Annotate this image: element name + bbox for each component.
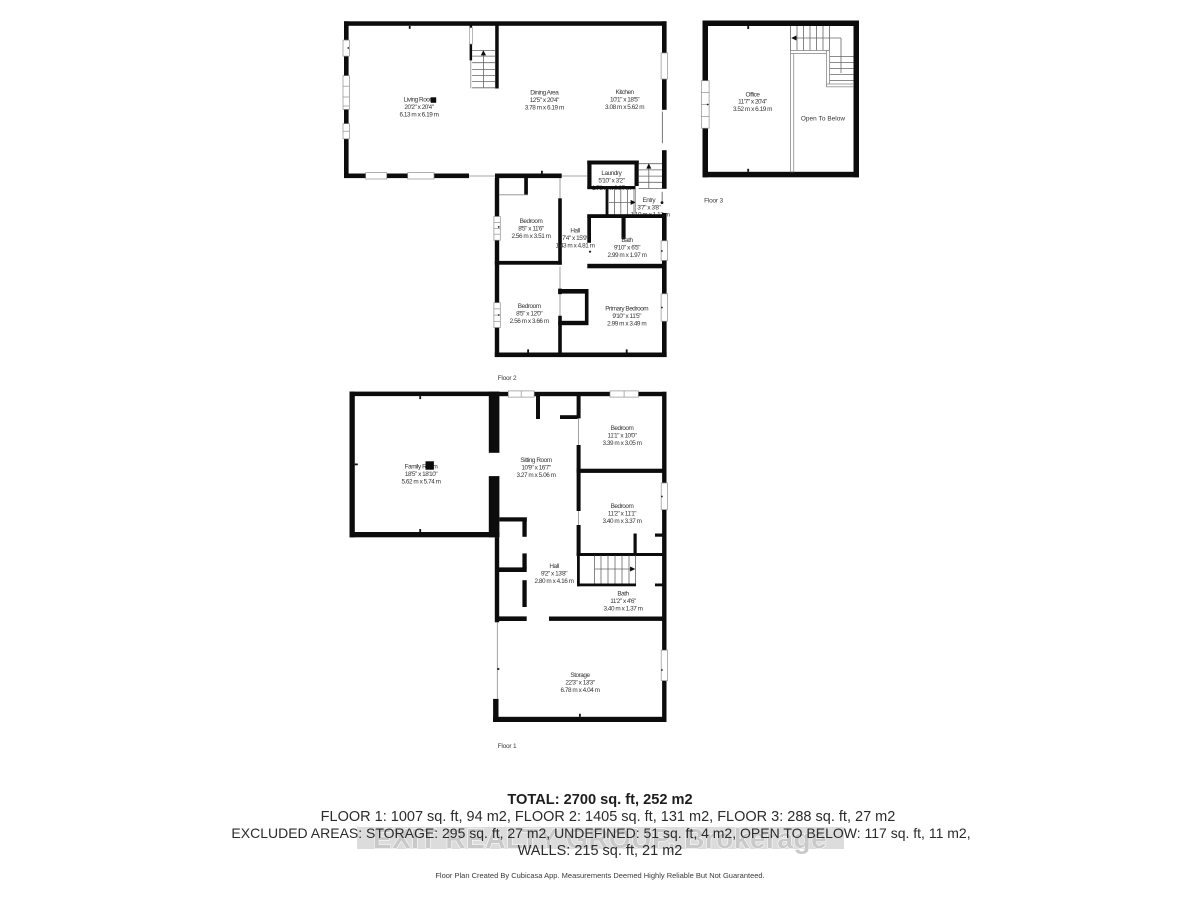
svg-text:11'2" x 4'6": 11'2" x 4'6" (610, 598, 636, 605)
svg-text:3.40 m x 1.37 m: 3.40 m x 1.37 m (603, 605, 642, 612)
svg-text:11'2" x 11'1": 11'2" x 11'1" (608, 511, 636, 518)
svg-text:Storage: Storage (570, 672, 590, 679)
svg-text:Kitchen: Kitchen (616, 89, 635, 96)
svg-text:5'10" x 3'2": 5'10" x 3'2" (598, 178, 624, 185)
svg-text:2.56 m x 3.66 m: 2.56 m x 3.66 m (510, 318, 549, 325)
svg-text:Hall: Hall (570, 227, 579, 234)
svg-text:3.78 m x 6.19 m: 3.78 m x 6.19 m (525, 104, 564, 111)
svg-text:12'5" x 20'4": 12'5" x 20'4" (530, 97, 559, 104)
svg-text:10'1" x 18'5": 10'1" x 18'5" (610, 97, 639, 104)
svg-text:Open To Below: Open To Below (801, 115, 846, 122)
svg-text:Sitting Room: Sitting Room (520, 457, 551, 464)
svg-text:Floor 3: Floor 3 (704, 197, 723, 204)
svg-text:11'7" x 20'4": 11'7" x 20'4" (738, 99, 767, 106)
svg-text:Office: Office (746, 91, 761, 98)
svg-text:Floor 2: Floor 2 (498, 375, 517, 382)
svg-text:2.56 m x 3.51 m: 2.56 m x 3.51 m (511, 233, 550, 240)
svg-text:2.99 m x 3.49 m: 2.99 m x 3.49 m (607, 321, 646, 328)
svg-text:Living Room: Living Room (404, 97, 435, 104)
svg-text:WALLS: 215 sq. ft, 21 m2: WALLS: 215 sq. ft, 21 m2 (518, 843, 683, 859)
svg-text:Primary Bedroom: Primary Bedroom (605, 306, 648, 313)
svg-text:Hall: Hall (549, 563, 558, 570)
svg-text:9'10" x 11'5": 9'10" x 11'5" (612, 313, 641, 320)
svg-text:8'5" x 12'0": 8'5" x 12'0" (516, 311, 542, 318)
svg-text:2.80 m x 4.16 m: 2.80 m x 4.16 m (534, 578, 573, 585)
svg-text:Floor Plan Created By Cubicasa: Floor Plan Created By Cubicasa App. Meas… (435, 871, 764, 880)
svg-text:Bath: Bath (617, 590, 629, 597)
svg-text:Bedroom: Bedroom (520, 218, 543, 225)
svg-text:Dining Area: Dining Area (530, 89, 559, 96)
svg-text:8'5" x 11'6": 8'5" x 11'6" (518, 225, 544, 232)
svg-text:20'2" x 20'4": 20'2" x 20'4" (404, 104, 433, 111)
svg-text:FLOOR 1: 1007 sq. ft, 94 m2, F: FLOOR 1: 1007 sq. ft, 94 m2, FLOOR 2: 14… (321, 809, 896, 825)
svg-text:18'5" x 18'10": 18'5" x 18'10" (405, 471, 437, 478)
svg-text:EXCLUDED AREAS: STORAGE: 295 s: EXCLUDED AREAS: STORAGE: 295 sq. ft, 27 … (231, 825, 970, 841)
svg-text:5.62 m x 5.74 m: 5.62 m x 5.74 m (401, 478, 440, 485)
svg-text:7'4" x 15'9": 7'4" x 15'9" (562, 235, 588, 242)
svg-text:1.43 m x 4.81 m: 1.43 m x 4.81 m (555, 242, 594, 249)
svg-text:Bath: Bath (621, 237, 633, 244)
svg-text:9'2" x 13'8": 9'2" x 13'8" (541, 571, 567, 578)
svg-text:Bedroom: Bedroom (518, 303, 541, 310)
svg-text:3.40 m x 3.37 m: 3.40 m x 3.37 m (602, 518, 641, 525)
svg-text:3.08 m x 5.62 m: 3.08 m x 5.62 m (605, 104, 644, 111)
svg-text:3.39 m x 3.05 m: 3.39 m x 3.05 m (602, 440, 641, 447)
svg-text:3'7" x 3'8": 3'7" x 3'8" (637, 204, 660, 211)
svg-text:22'3" x 13'3": 22'3" x 13'3" (565, 680, 594, 687)
svg-text:Bedroom: Bedroom (611, 425, 634, 432)
svg-text:TOTAL: 2700 sq. ft, 252 m2: TOTAL: 2700 sq. ft, 252 m2 (507, 792, 692, 808)
svg-text:10'9" x 16'7": 10'9" x 16'7" (521, 465, 550, 472)
svg-text:6.13 m x 6.19 m: 6.13 m x 6.19 m (399, 112, 438, 119)
svg-text:2.99 m x 1.97 m: 2.99 m x 1.97 m (607, 252, 646, 259)
svg-text:11'1" x 10'0": 11'1" x 10'0" (608, 433, 637, 440)
svg-text:Entry: Entry (642, 197, 656, 204)
svg-text:3.52 m x 6.19 m: 3.52 m x 6.19 m (733, 106, 772, 113)
svg-text:9'10" x 6'5": 9'10" x 6'5" (614, 245, 640, 252)
svg-text:6.78 m x 4.04 m: 6.78 m x 4.04 m (560, 687, 599, 694)
svg-text:Floor 1: Floor 1 (498, 743, 517, 750)
svg-text:Bedroom: Bedroom (611, 503, 634, 510)
svg-text:3.27 m x 5.06 m: 3.27 m x 5.06 m (516, 472, 555, 479)
svg-text:Laundry: Laundry (601, 170, 622, 177)
